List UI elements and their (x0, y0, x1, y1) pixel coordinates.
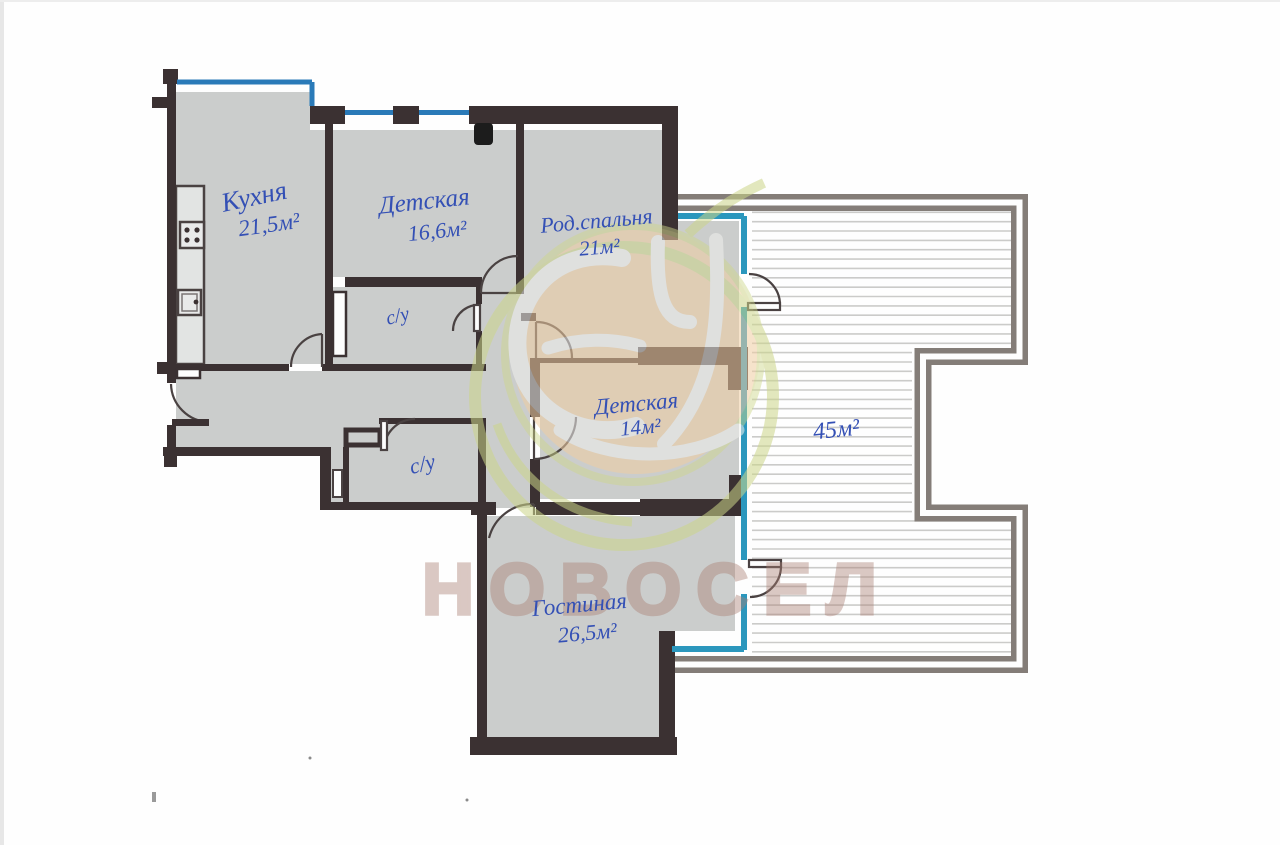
svg-text:45м²: 45м² (812, 415, 862, 446)
svg-text:26,5м²: 26,5м² (557, 617, 618, 647)
svg-text:НОВОСЕЛ: НОВОСЕЛ (422, 550, 892, 630)
svg-text:14м²: 14м² (619, 413, 662, 441)
svg-text:21м²: 21м² (578, 233, 621, 261)
